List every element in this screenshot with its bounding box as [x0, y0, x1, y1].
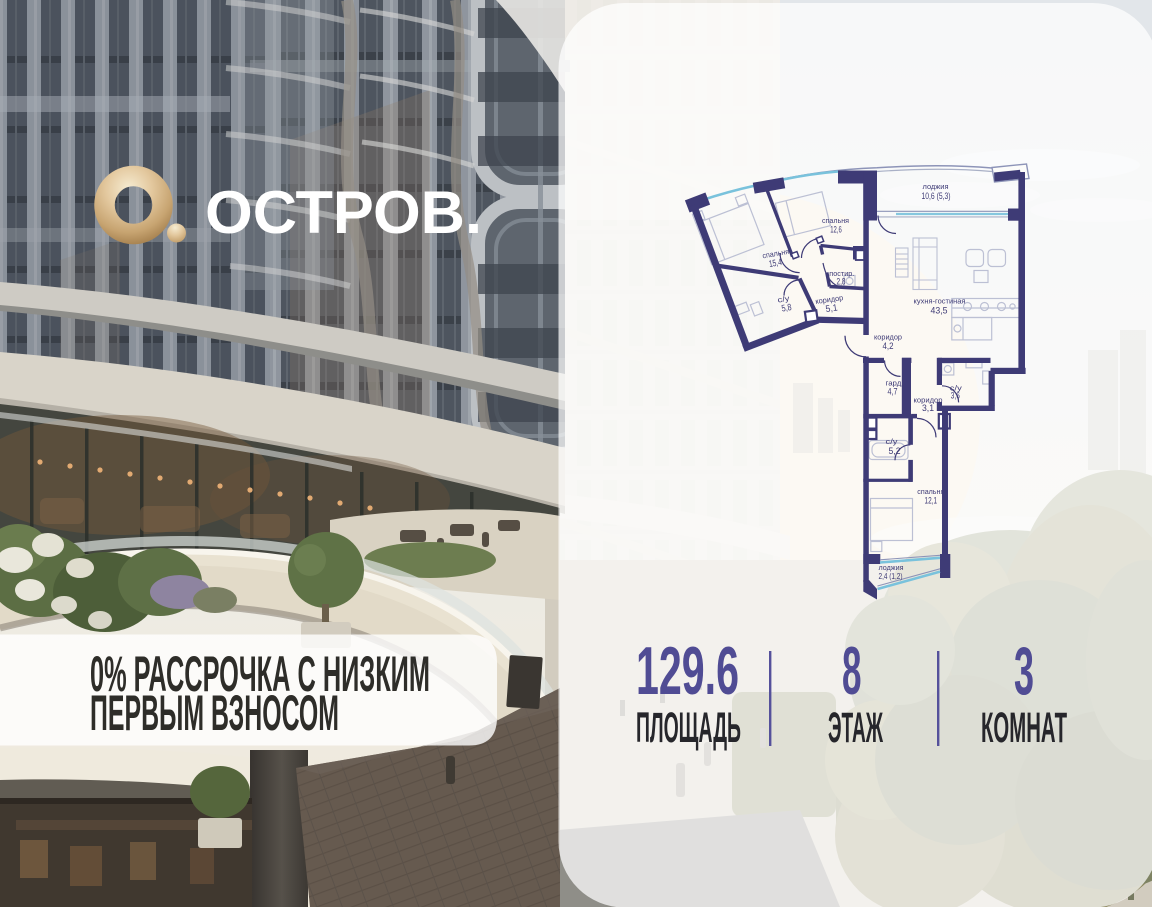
svg-text:12,6: 12,6 [830, 225, 842, 236]
svg-text:2,8: 2,8 [837, 277, 846, 288]
svg-text:5,2: 5,2 [889, 446, 901, 457]
svg-text:10,6 (5,3): 10,6 (5,3) [922, 191, 951, 202]
svg-text:ПЕРВЫМ ВЗНОСОМ: ПЕРВЫМ ВЗНОСОМ [90, 685, 339, 741]
svg-text:кухня-гостиная: кухня-гостиная [914, 297, 966, 306]
svg-text:ПЛОЩАДЬ: ПЛОЩАДЬ [636, 704, 741, 752]
svg-text:12,1: 12,1 [925, 496, 938, 507]
svg-text:3: 3 [1014, 633, 1034, 709]
svg-text:КОМНАТ: КОМНАТ [981, 704, 1067, 752]
svg-text:ОСТРОВ.: ОСТРОВ. [205, 179, 482, 246]
svg-text:3,6: 3,6 [951, 391, 960, 402]
svg-text:3,1: 3,1 [922, 403, 934, 414]
svg-text:спальня: спальня [822, 216, 849, 225]
svg-text:5,1: 5,1 [825, 303, 838, 316]
svg-text:8: 8 [842, 633, 862, 709]
svg-text:лоджия: лоджия [923, 182, 949, 191]
svg-text:129.6: 129.6 [636, 633, 739, 709]
svg-text:2,4 (1,2): 2,4 (1,2) [879, 571, 903, 581]
svg-text:4,2: 4,2 [883, 341, 894, 352]
svg-text:43,5: 43,5 [931, 305, 948, 316]
svg-text:с/у: с/у [886, 437, 898, 446]
svg-text:4,7: 4,7 [888, 387, 898, 398]
svg-text:15,4: 15,4 [768, 257, 783, 270]
svg-text:5,8: 5,8 [781, 302, 793, 315]
svg-text:ЭТАЖ: ЭТАЖ [828, 704, 883, 752]
